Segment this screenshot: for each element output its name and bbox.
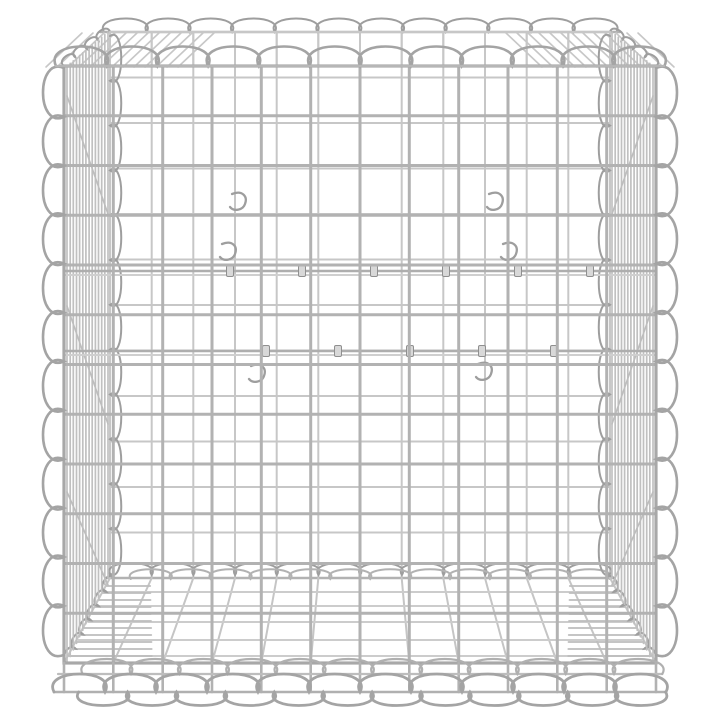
- left-side-mesh: [67, 32, 108, 663]
- wire-clip: [299, 266, 306, 277]
- tie-hook: [487, 193, 503, 210]
- wire-clip: [227, 266, 234, 277]
- back-top-spiral: [100, 19, 620, 33]
- wire-clip: [371, 266, 378, 277]
- tie-hook: [220, 243, 236, 260]
- wire-clip: [443, 266, 450, 277]
- wire-clip: [479, 346, 486, 357]
- right-side-mesh: [612, 32, 653, 663]
- gabion-product-photo: [0, 0, 720, 720]
- wire-clip: [335, 346, 342, 357]
- wire-clip: [587, 266, 594, 277]
- wire-clip: [515, 266, 522, 277]
- bottom-spiral: [53, 659, 668, 706]
- wire-clip: [263, 346, 270, 357]
- gabion-basket-illustration: [0, 0, 720, 720]
- tie-hook: [230, 193, 246, 210]
